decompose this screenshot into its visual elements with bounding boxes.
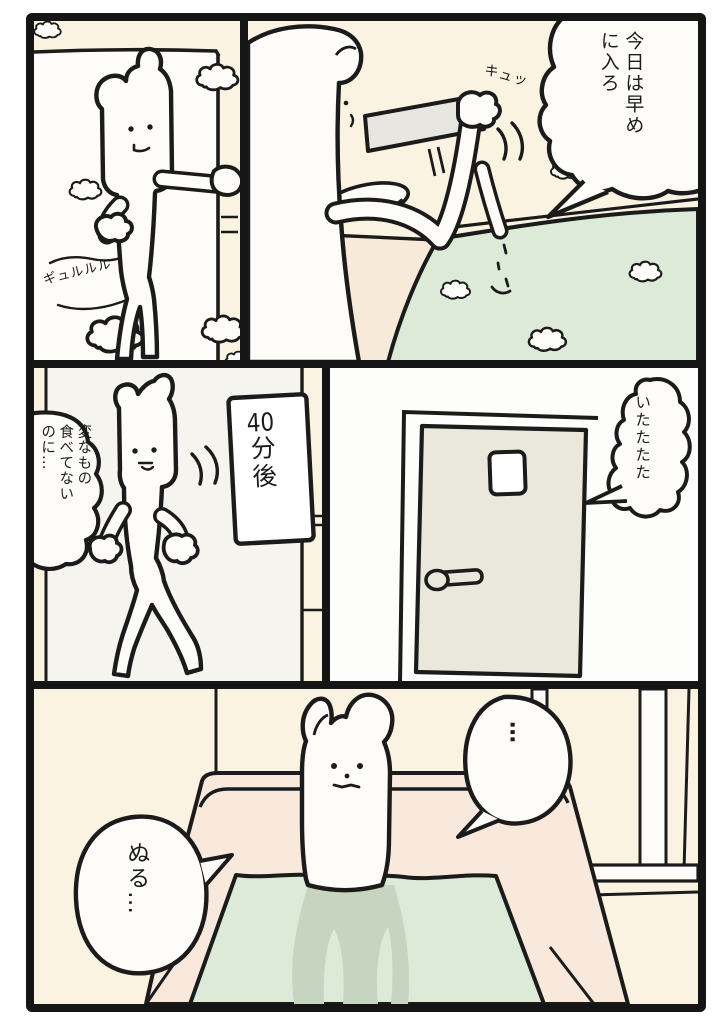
steam-cloud	[441, 281, 470, 299]
steam-cloud	[630, 262, 662, 282]
door-window	[489, 451, 525, 494]
panel-4: いたたたた	[322, 360, 706, 691]
steam-cloud	[70, 180, 102, 200]
character-in-bath	[302, 695, 392, 891]
paw-on-knob	[458, 92, 500, 127]
speech-bubble-text: 変なもの 食べてない のに…	[38, 424, 92, 556]
paw-on-door	[212, 167, 242, 195]
paw-on-belly	[96, 214, 132, 241]
caption-suffix: 分後	[247, 434, 279, 491]
panel-2: 今日は早め に入ろ キュッ	[240, 13, 706, 370]
speech-bubble-text: いたたたた	[632, 394, 652, 506]
panel-1: ギュルルル	[26, 13, 250, 370]
right-fist	[164, 534, 198, 563]
speech-bubble-text: 今日は早め に入ろ	[596, 31, 645, 181]
left-fist	[90, 536, 122, 563]
steam-cloud	[34, 22, 60, 38]
steam-cloud	[202, 316, 242, 342]
speech-bubble-ellipsis-text: …	[502, 721, 531, 801]
steam-cloud	[529, 328, 566, 351]
steam-cloud	[197, 64, 238, 89]
panel-1-drawing	[34, 21, 242, 362]
speech-bubble-lukewarm-text: ぬる…	[120, 841, 150, 953]
panel-3: 変なもの 食べてない のに… 40分後	[26, 360, 332, 691]
comic-page: ギュルルル	[0, 0, 720, 1031]
caption-text: 40分後	[243, 409, 282, 533]
caption-number: 40	[245, 409, 275, 435]
panel-5: … ぬる…	[26, 681, 706, 1012]
